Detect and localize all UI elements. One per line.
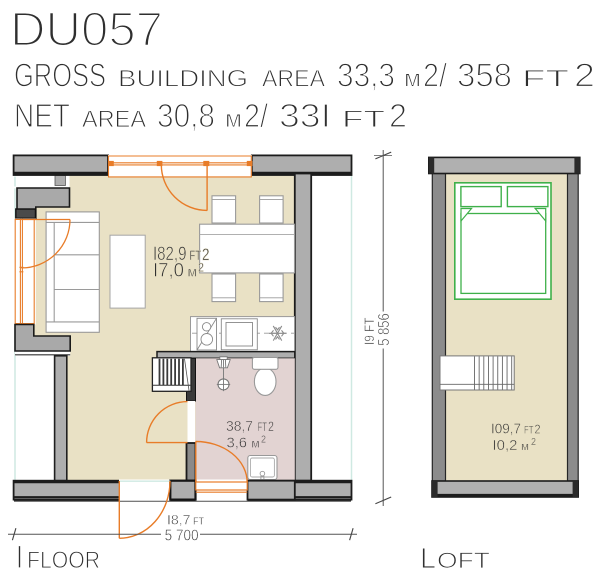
svg-text:2/: 2/ [423, 56, 448, 93]
svg-text:DU057: DU057 [10, 3, 163, 57]
svg-text:м: м [188, 264, 198, 280]
svg-text:FT: FT [522, 65, 569, 92]
svg-text:2: 2 [531, 437, 536, 448]
svg-text:AREA: AREA [262, 65, 326, 92]
svg-text:м: м [225, 106, 242, 133]
svg-text:5 700: 5 700 [165, 528, 199, 545]
svg-text:2: 2 [261, 435, 266, 446]
svg-text:I09,7: I09,7 [491, 422, 521, 438]
svg-text:L: L [420, 543, 436, 575]
svg-text:FT: FT [258, 422, 268, 434]
svg-text:NET: NET [14, 97, 70, 134]
svg-text:I8,7: I8,7 [167, 512, 191, 527]
svg-text:м: м [404, 65, 421, 92]
svg-text:м: м [521, 441, 529, 453]
svg-text:30,8: 30,8 [157, 97, 215, 134]
svg-text:FLOOR: FLOOR [27, 547, 100, 574]
svg-text:38,7: 38,7 [226, 418, 253, 435]
svg-text:OFT: OFT [437, 548, 490, 573]
svg-text:358: 358 [457, 56, 512, 93]
svg-text:I9 FT: I9 FT [362, 318, 377, 346]
svg-text:I: I [16, 539, 23, 575]
svg-text:FT: FT [193, 515, 205, 527]
svg-text:33,3: 33,3 [337, 56, 395, 93]
svg-text:AREA: AREA [82, 106, 147, 133]
svg-text:2/: 2/ [244, 97, 269, 134]
svg-text:5 856: 5 856 [376, 313, 393, 346]
svg-text:GROSS: GROSS [14, 56, 106, 93]
svg-text:BUILDING: BUILDING [118, 65, 248, 92]
svg-text:I0,2: I0,2 [493, 438, 518, 454]
svg-text:33I: 33I [279, 97, 331, 134]
svg-text:м: м [252, 438, 260, 450]
svg-text:2: 2 [389, 97, 407, 134]
svg-text:2: 2 [198, 261, 204, 275]
svg-text:FT: FT [524, 425, 534, 437]
svg-text:2: 2 [535, 422, 541, 437]
svg-text:2: 2 [574, 56, 595, 93]
svg-text:2: 2 [268, 419, 274, 434]
svg-text:3,6: 3,6 [227, 434, 248, 451]
svg-text:FT: FT [342, 106, 385, 133]
svg-text:I7,0: I7,0 [153, 261, 184, 282]
